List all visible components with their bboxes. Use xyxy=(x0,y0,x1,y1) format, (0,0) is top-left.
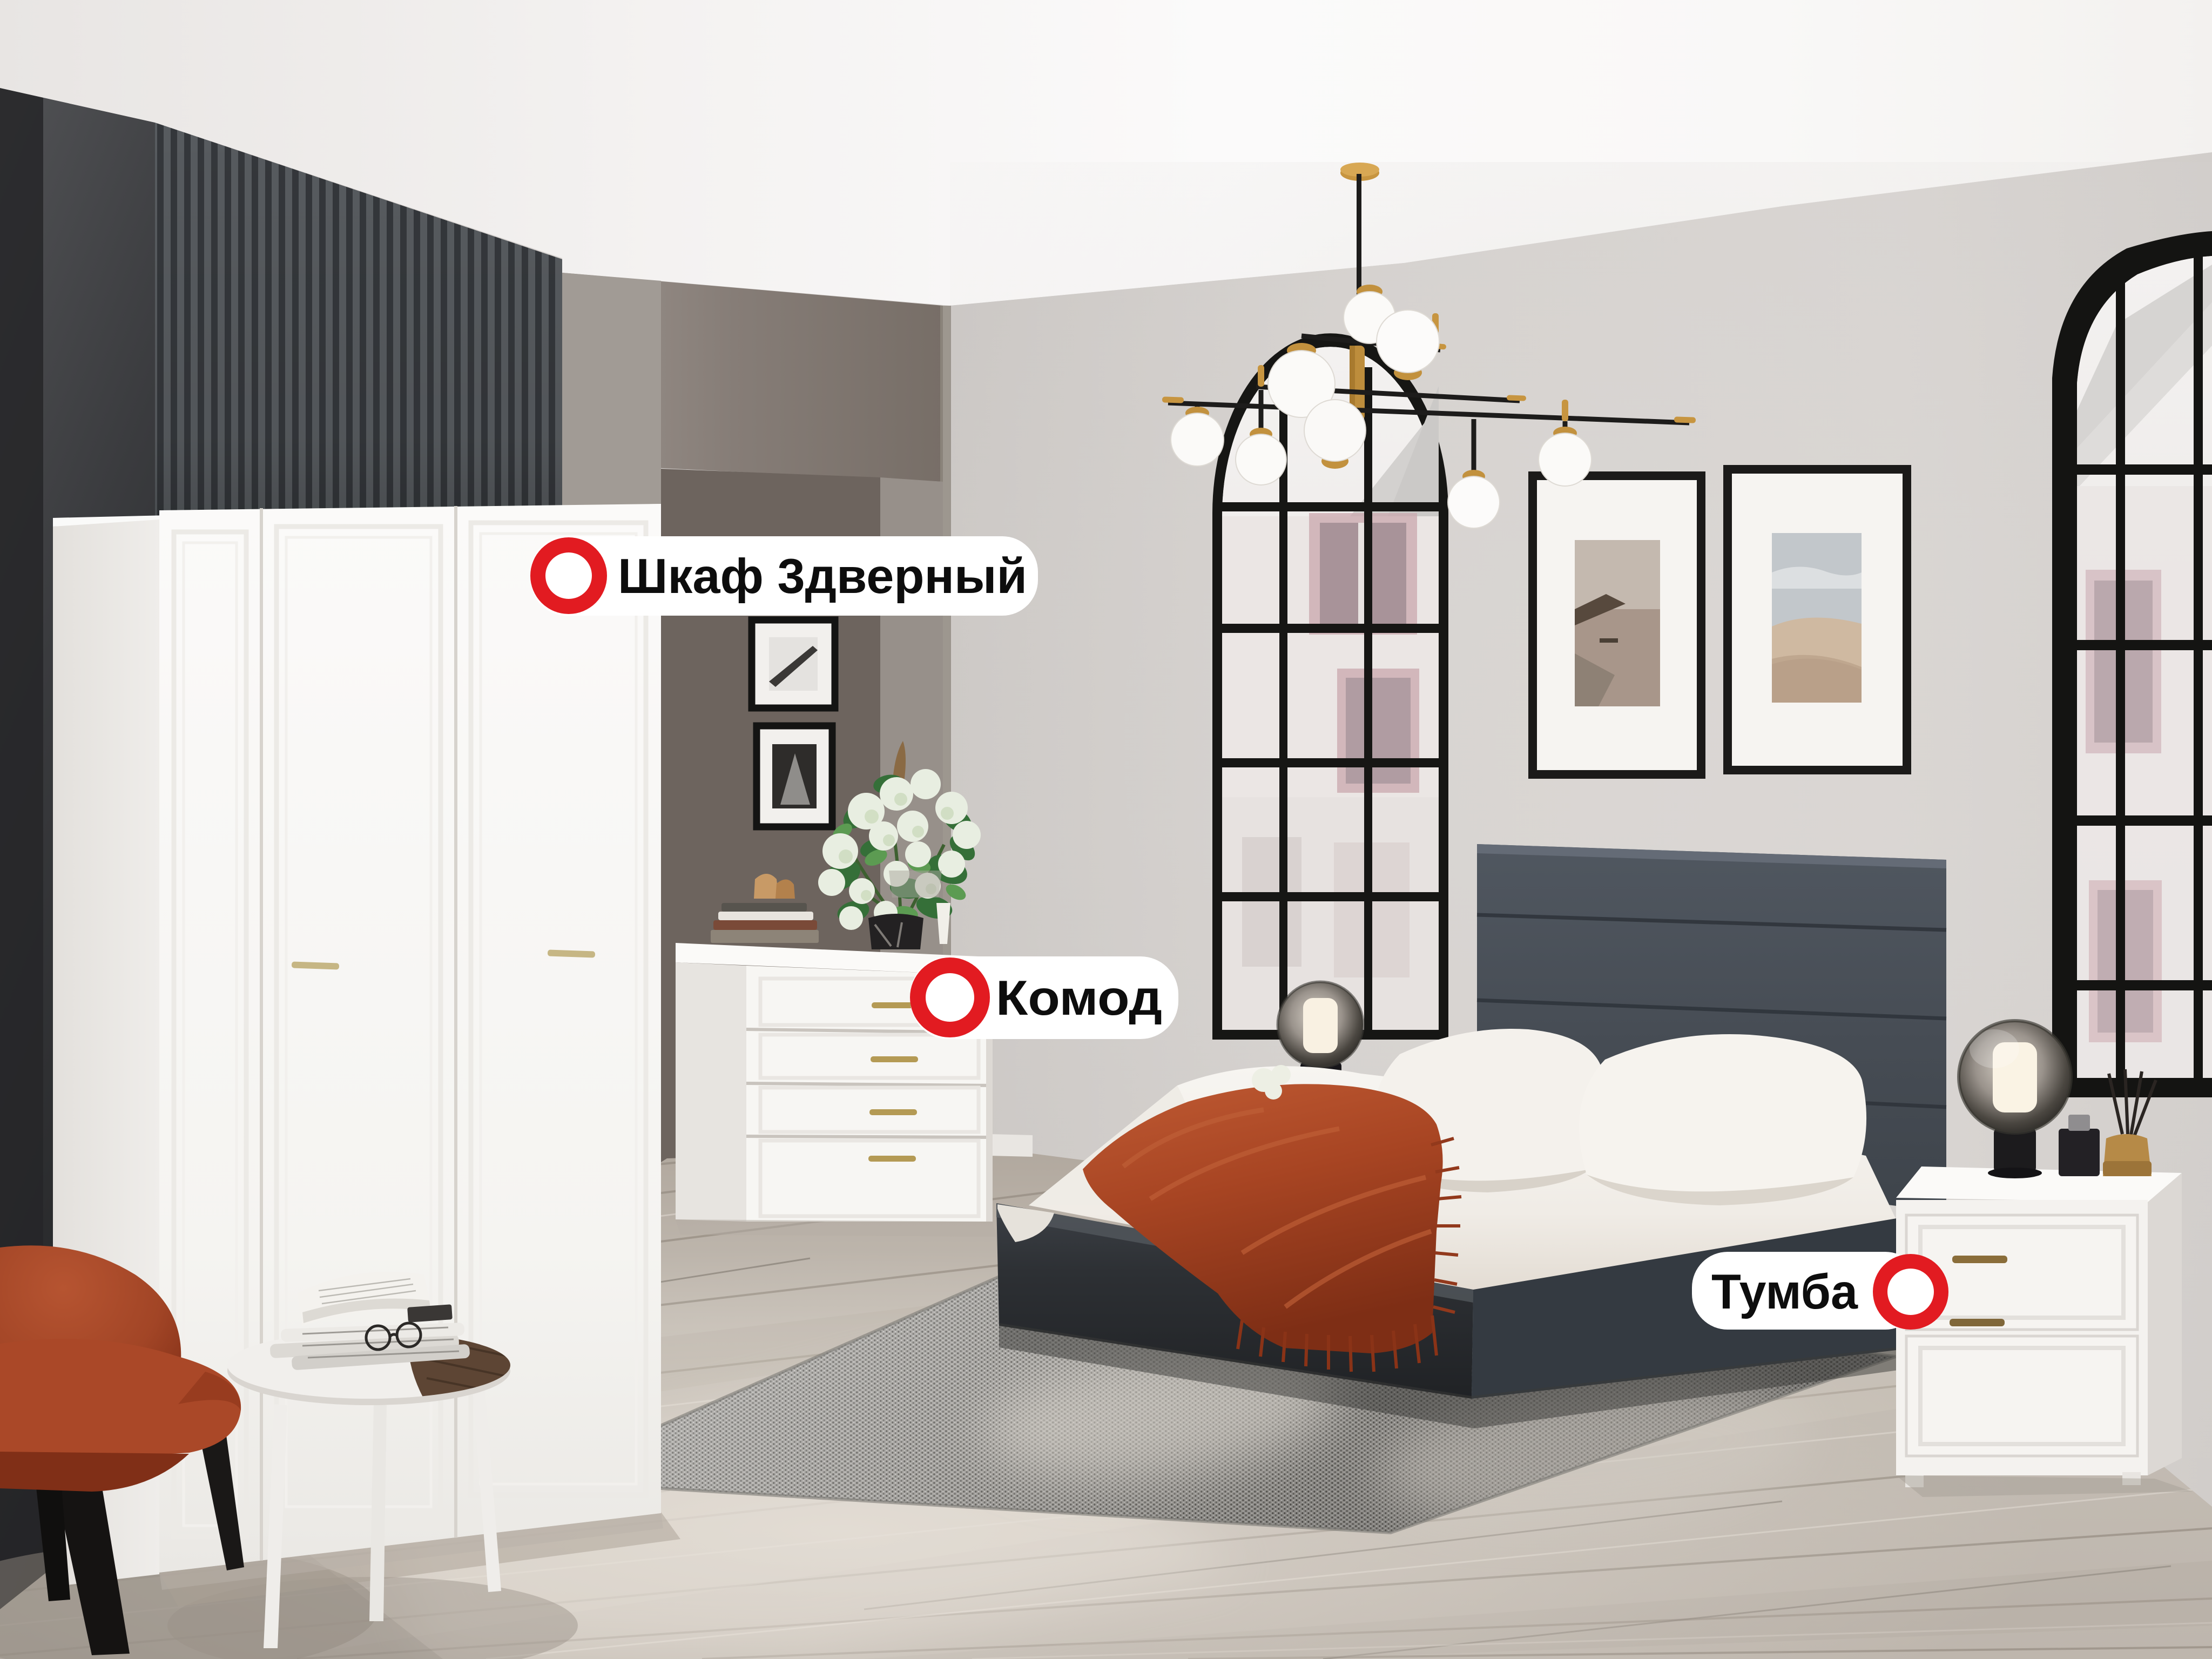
svg-text:Шкаф 3дверный: Шкаф 3дверный xyxy=(618,549,1027,604)
svg-text:Тумба: Тумба xyxy=(1711,1265,1858,1319)
svg-text:Комод: Комод xyxy=(996,971,1162,1026)
